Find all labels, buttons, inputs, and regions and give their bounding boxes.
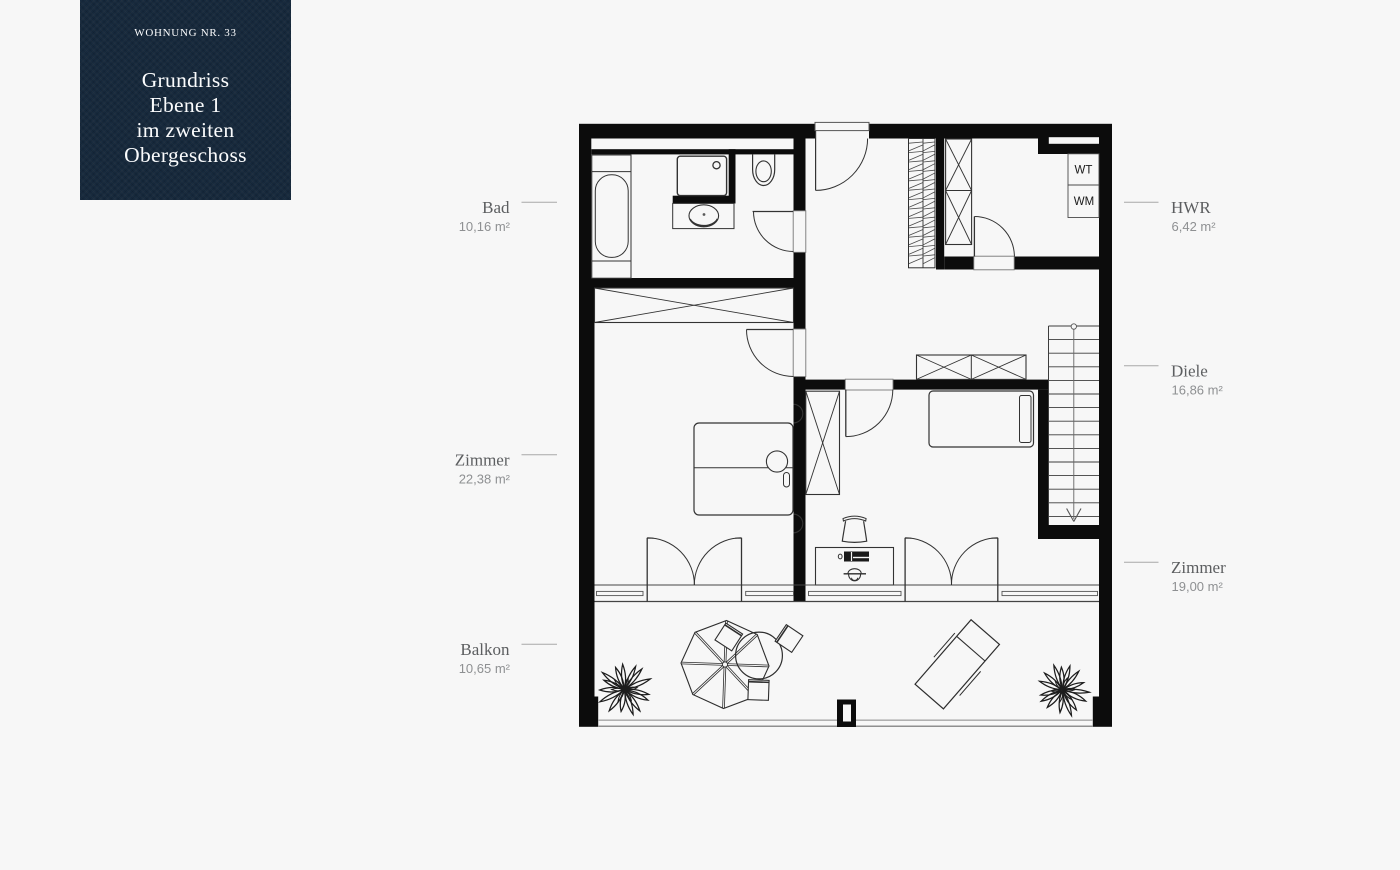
svg-text:WT: WT [1075, 165, 1093, 177]
svg-text:Bad: Bad [482, 198, 510, 217]
svg-text:10,16 m²: 10,16 m² [459, 219, 511, 234]
svg-text:19,00 m²: 19,00 m² [1172, 579, 1224, 594]
svg-text:22,38 m²: 22,38 m² [459, 472, 511, 487]
svg-text:Zimmer: Zimmer [455, 451, 510, 470]
svg-text:Zimmer: Zimmer [1171, 558, 1226, 577]
svg-text:6,42 m²: 6,42 m² [1172, 219, 1217, 234]
svg-text:Balkon: Balkon [460, 640, 510, 659]
svg-text:16,86 m²: 16,86 m² [1172, 383, 1224, 398]
svg-text:HWR: HWR [1171, 198, 1211, 217]
svg-text:WM: WM [1074, 196, 1094, 208]
svg-text:Diele: Diele [1171, 362, 1208, 381]
svg-text:10,65 m²: 10,65 m² [459, 661, 511, 676]
